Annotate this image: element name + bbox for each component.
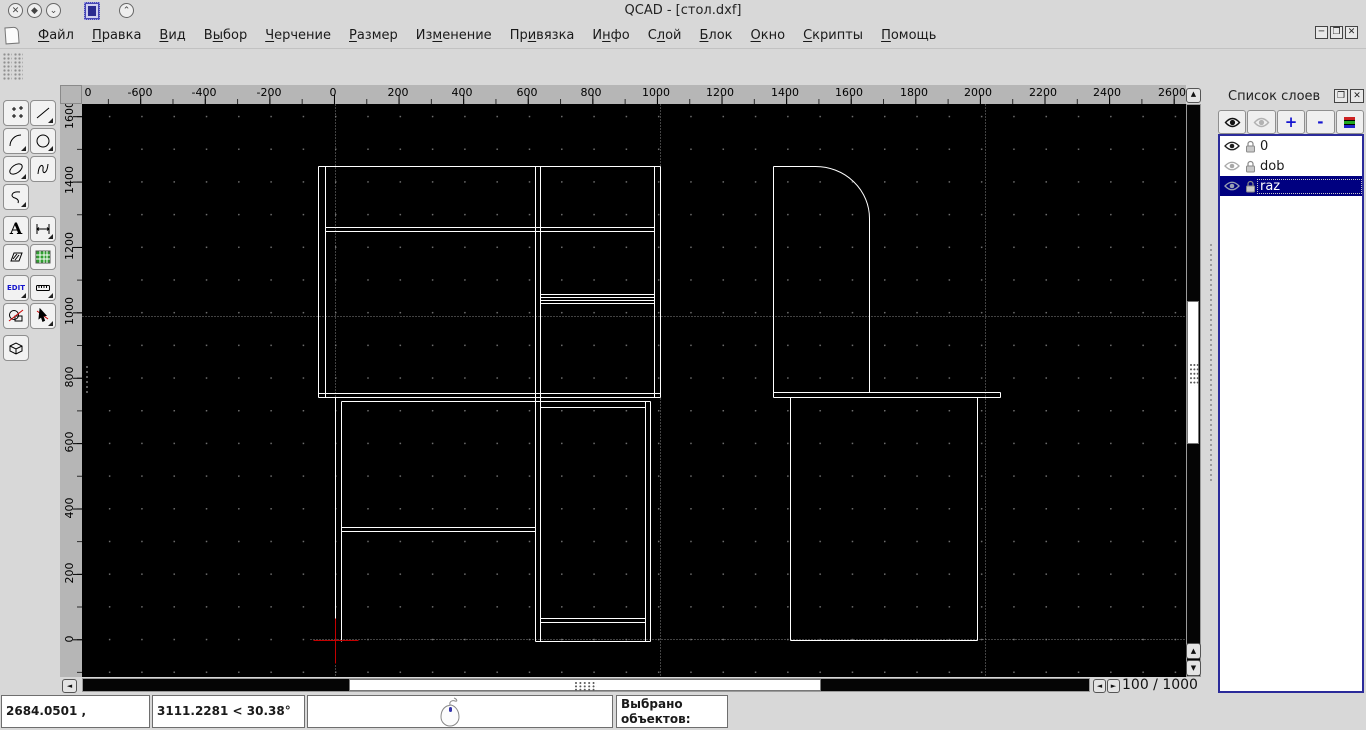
add-layer-button[interactable]: + bbox=[1277, 110, 1305, 134]
lock-icon[interactable] bbox=[1244, 160, 1257, 173]
horizontal-scrollbar[interactable] bbox=[82, 678, 1090, 692]
layer-visibility-icon[interactable] bbox=[1224, 180, 1240, 192]
menu-item-1[interactable]: Правка bbox=[83, 26, 150, 45]
menu-item-6[interactable]: Изменение bbox=[407, 26, 501, 45]
menu-item-12[interactable]: Скрипты bbox=[794, 26, 872, 45]
scroll-left-button-2[interactable]: ◄ bbox=[1093, 679, 1106, 693]
edit-tool-button[interactable]: EDIT bbox=[3, 275, 29, 301]
menu-item-10[interactable]: Блок bbox=[691, 26, 742, 45]
layer-panel-title: Список слоев bbox=[1228, 89, 1320, 104]
panel-splitter-handle[interactable] bbox=[1210, 244, 1213, 484]
scroll-left-button[interactable]: ◄ bbox=[62, 679, 77, 693]
layer-attributes-button[interactable] bbox=[1336, 110, 1364, 134]
menu-item-13[interactable]: Помощь bbox=[872, 26, 945, 45]
drawing-canvas[interactable] bbox=[82, 104, 1186, 677]
new-file-icon[interactable] bbox=[4, 26, 19, 44]
selection-count: 0 bbox=[621, 727, 723, 728]
thumb-grip-icon bbox=[1190, 364, 1199, 386]
text-icon: A bbox=[10, 221, 22, 237]
selection-label: Выбрано объектов: bbox=[621, 697, 723, 727]
eye-open-icon bbox=[1224, 116, 1241, 129]
vertical-ruler: 16001400120010008006004002000 bbox=[60, 104, 82, 677]
select-tool-button[interactable] bbox=[30, 303, 56, 329]
eye-closed-icon bbox=[1253, 116, 1270, 129]
mdi-close-button[interactable]: ✕ bbox=[1345, 26, 1358, 39]
dimension-tool-button[interactable] bbox=[30, 216, 56, 242]
spline-icon bbox=[34, 160, 52, 178]
scroll-up-button[interactable]: ▲ bbox=[1186, 88, 1201, 103]
mdi-restore-button[interactable]: ❐ bbox=[1330, 26, 1343, 39]
layer-panel: Список слоев ❐ ✕ + - 0dobraz bbox=[1216, 85, 1366, 695]
palette-splitter-handle[interactable] bbox=[86, 366, 89, 394]
measure-icon bbox=[34, 279, 52, 297]
vertical-scrollbar[interactable] bbox=[1186, 104, 1201, 677]
horizontal-ruler: 0-600-400-200020040060080010001200140016… bbox=[82, 85, 1186, 104]
points-icon bbox=[7, 104, 25, 122]
menu-item-4[interactable]: Черчение bbox=[256, 26, 340, 45]
layer-row-raz[interactable]: raz bbox=[1220, 176, 1362, 196]
grid-indicator: 100 / 1000 bbox=[1122, 677, 1198, 693]
statusbar: 2684.0501 , 1573.4087 3111.2281 < 30.38°… bbox=[0, 694, 1366, 730]
arc-tool-button[interactable] bbox=[3, 128, 29, 154]
image-icon bbox=[34, 248, 52, 266]
hide-layer-button[interactable] bbox=[1247, 110, 1275, 134]
cube3d-tool-button[interactable] bbox=[3, 335, 29, 361]
menu-item-8[interactable]: Инфо bbox=[583, 26, 638, 45]
hatch-tool-button[interactable] bbox=[3, 244, 29, 270]
ruler-corner bbox=[60, 85, 82, 104]
hatch-icon bbox=[7, 248, 25, 266]
polyline-icon bbox=[7, 188, 25, 206]
mdi-controls: ─ ❐ ✕ bbox=[1315, 26, 1358, 39]
panel-close-button[interactable]: ✕ bbox=[1350, 89, 1364, 103]
show-layer-button[interactable] bbox=[1218, 110, 1246, 134]
menu-item-7[interactable]: Привязка bbox=[501, 26, 584, 45]
mouse-icon bbox=[433, 696, 475, 728]
ellipse-tool-button[interactable] bbox=[3, 156, 29, 182]
menu-item-9[interactable]: Слой bbox=[639, 26, 691, 45]
cad-tool-palette: A EDIT bbox=[0, 84, 60, 694]
layer-panel-header: Список слоев ❐ ✕ bbox=[1216, 85, 1366, 109]
polar-coordinates: 3111.2281 < 30.38° bbox=[152, 695, 305, 728]
menu-item-0[interactable]: Файл bbox=[29, 26, 83, 45]
layer-attributes-icon bbox=[1343, 116, 1357, 129]
ellipse-icon bbox=[7, 160, 25, 178]
image-tool-button[interactable] bbox=[30, 244, 56, 270]
menu-item-11[interactable]: Окно bbox=[742, 26, 795, 45]
layer-visibility-icon[interactable] bbox=[1224, 140, 1240, 152]
measure-tool-button[interactable] bbox=[30, 275, 56, 301]
explode-tool-button[interactable] bbox=[3, 303, 29, 329]
toolbar-grip-icon[interactable] bbox=[14, 53, 23, 80]
window-title: QCAD - [стол.dxf] bbox=[0, 3, 1366, 18]
selection-counter: Выбрано объектов: 0 bbox=[616, 695, 728, 728]
line-icon bbox=[34, 104, 52, 122]
toolbar-row bbox=[0, 48, 1366, 85]
panel-float-button[interactable]: ❐ bbox=[1334, 89, 1348, 103]
arc-icon bbox=[7, 132, 25, 150]
menu-item-3[interactable]: Выбор bbox=[195, 26, 256, 45]
layer-name: raz bbox=[1257, 179, 1362, 194]
titlebar: ✕ ◆ ⌄ ⌃ QCAD - [стол.dxf] bbox=[0, 0, 1366, 22]
menu-item-2[interactable]: Вид bbox=[150, 26, 194, 45]
explode-icon bbox=[7, 307, 25, 325]
line-tool-button[interactable] bbox=[30, 100, 56, 126]
scroll-right-button[interactable]: ► bbox=[1107, 679, 1120, 693]
menu-item-5[interactable]: Размер bbox=[340, 26, 407, 45]
polyline-tool-button[interactable] bbox=[3, 184, 29, 210]
scroll-up-button-2[interactable]: ▲ bbox=[1186, 643, 1201, 659]
dimension-icon bbox=[34, 220, 52, 238]
scroll-down-button[interactable]: ▼ bbox=[1186, 660, 1201, 676]
toolbar-grip-icon[interactable] bbox=[3, 53, 12, 80]
remove-layer-button[interactable]: - bbox=[1306, 110, 1334, 134]
select-icon bbox=[34, 307, 52, 325]
edit-icon: EDIT bbox=[7, 284, 25, 292]
vertical-scrollbar-thumb[interactable] bbox=[1187, 301, 1199, 444]
mdi-minimize-button[interactable]: ─ bbox=[1315, 26, 1328, 39]
layer-row-0[interactable]: 0 bbox=[1220, 136, 1362, 156]
layer-name: 0 bbox=[1257, 139, 1271, 154]
lock-icon[interactable] bbox=[1244, 180, 1257, 193]
cube3d-icon bbox=[7, 339, 25, 357]
horizontal-scrollbar-thumb[interactable] bbox=[349, 679, 821, 691]
layer-visibility-icon[interactable] bbox=[1224, 160, 1240, 172]
lock-icon[interactable] bbox=[1244, 140, 1257, 153]
spline-tool-button[interactable] bbox=[30, 156, 56, 182]
thumb-grip-icon bbox=[575, 682, 597, 691]
circle-tool-button[interactable] bbox=[30, 128, 56, 154]
horizontal-scroll-strip: ◄ ◄ ► 100 / 1000 bbox=[0, 677, 1366, 694]
layer-name: dob bbox=[1257, 159, 1287, 174]
menu-items: ФайлПравкаВидВыборЧерчениеРазмерИзменени… bbox=[29, 26, 945, 45]
layer-list: 0dobraz bbox=[1218, 134, 1364, 693]
circle-icon bbox=[34, 132, 52, 150]
qcad-window: ✕ ◆ ⌄ ⌃ QCAD - [стол.dxf] ФайлПравкаВидВ… bbox=[0, 0, 1366, 730]
points-tool-button[interactable] bbox=[3, 100, 29, 126]
layer-row-dob[interactable]: dob bbox=[1220, 156, 1362, 176]
mouse-hint-panel bbox=[307, 695, 613, 728]
absolute-coordinates: 2684.0501 , 1573.4087 bbox=[1, 695, 150, 728]
menubar: ФайлПравкаВидВыборЧерчениеРазмерИзменени… bbox=[0, 22, 1366, 48]
text-tool-button[interactable]: A bbox=[3, 216, 29, 242]
layer-toolbar: + - bbox=[1218, 110, 1364, 134]
